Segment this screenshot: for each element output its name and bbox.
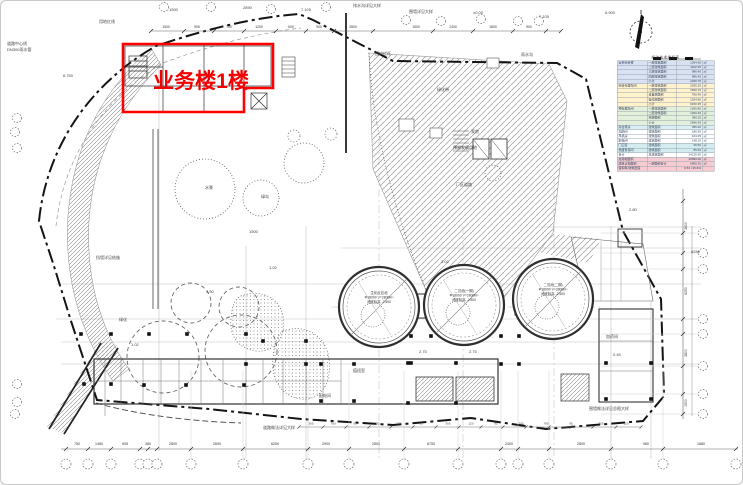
- dim-value: 1480: [95, 442, 103, 446]
- schedule-cell: [702, 166, 714, 171]
- annotation-text: 7.105: [539, 14, 550, 19]
- dim-value: 6750: [427, 442, 435, 446]
- column-dot: [261, 339, 265, 343]
- grid-bubble: [13, 144, 22, 153]
- grid-bubble: [344, 459, 354, 469]
- drainage-channel: [153, 129, 158, 309]
- column-dot: [82, 382, 86, 386]
- site-plan-screenshot: 生化反应池Ф18000 V=2800m³池底标高 -2.500二沉池(一期)Ф1…: [0, 0, 743, 485]
- column-dot: [319, 362, 323, 366]
- area-schedule-title: 经济技术指标表: [617, 55, 714, 60]
- grid-bubble: [13, 380, 22, 389]
- grid-bubble: [699, 330, 708, 339]
- grid-bubble: [544, 459, 554, 469]
- dim-value: 900: [316, 25, 322, 29]
- column-dot: [242, 383, 246, 387]
- grid-bubble: [11, 128, 20, 137]
- dim-value: 1500: [412, 25, 420, 29]
- grid-bubble: [13, 114, 22, 123]
- grid-bubble: [496, 459, 506, 469]
- column-dot: [517, 362, 521, 366]
- dim-value: 750: [74, 442, 80, 446]
- grid-bubble: [514, 17, 523, 26]
- annotation-text: 3.02: [441, 259, 450, 264]
- annotation-text: 道路做法详见大样: [263, 424, 295, 430]
- annotation-text: 2890: [243, 5, 253, 10]
- tank-label: 池底标高 -2.500: [367, 299, 391, 304]
- grid-bubble: [699, 390, 708, 399]
- schedule-row: 综合处理车间一层建筑面积2035.20㎡: [617, 84, 714, 89]
- annotation-text: 挡墙详见结施: [96, 254, 120, 260]
- boundary-hatch-band: [67, 48, 161, 381]
- annotation-text: 6.750: [63, 73, 74, 78]
- dim-value: 2800: [349, 25, 357, 29]
- annotation-text: 泵房: [471, 128, 479, 134]
- dim-value: 905: [122, 442, 128, 446]
- column-dot: [244, 332, 248, 336]
- column-dot: [406, 401, 410, 405]
- column-dot: [185, 332, 189, 336]
- tank-label: 池底标高 -2.500: [452, 297, 476, 302]
- annotation-text: 加药间: [606, 333, 618, 339]
- dim-value: 780: [330, 422, 335, 426]
- stair-ladder: [282, 57, 295, 77]
- schedule-row: 业务综合楼一层建筑面积1264.60㎡: [617, 61, 714, 66]
- grid-bubble: [731, 459, 741, 469]
- dim-value: 305: [445, 422, 450, 426]
- grid-bubble: [513, 459, 523, 469]
- annotation-text: 2.75: [469, 349, 478, 354]
- dim-value: 120: [623, 422, 628, 426]
- dim-value: 6250: [684, 287, 688, 295]
- grid-bubble: [207, 3, 216, 12]
- annotation-text: 厂区道路: [456, 181, 472, 187]
- dim-value: 120: [468, 422, 473, 426]
- annotation-text: 1.02: [269, 265, 278, 270]
- dim-value: 2800: [684, 349, 688, 357]
- schedule-cell: 容积率/建筑密度: [617, 166, 647, 171]
- grid-bubble: [402, 16, 411, 25]
- column-dot: [649, 397, 653, 401]
- grid-bubble: [61, 459, 71, 469]
- grid-bubble: [658, 459, 668, 469]
- clarifier-tank: 二沉池(二期)Ф18000 V=2800m³池底标高 -2.500: [513, 259, 593, 339]
- dim-value: 2400: [505, 442, 513, 446]
- clarifier-tank: 生化反应池Ф18000 V=2800m³池底标高 -2.500: [339, 267, 419, 347]
- column-dot: [406, 361, 410, 365]
- annotation-text: 围墙详见大样: [409, 8, 433, 14]
- tank-label: Ф18000 V=2800m³: [450, 294, 480, 298]
- annotation-text: 围护栏杆: [375, 50, 391, 56]
- grid-bubble: [267, 5, 276, 14]
- annotation-text: 7.105: [301, 7, 312, 12]
- tank-label: Ф18000 V=2800m³: [365, 296, 395, 300]
- grid-bubble: [477, 15, 486, 24]
- schedule-row: 建筑占地面积一层面积合计6890.35㎡: [617, 162, 714, 167]
- annotation-text: 2.75: [419, 349, 428, 354]
- grid-bubble: [699, 315, 708, 324]
- dim-value: 305: [308, 422, 313, 426]
- area-schedule-table: 经济技术指标表 业务综合楼一层建筑面积1264.60㎡二层建筑面积1102.35…: [617, 55, 714, 171]
- north-compass-icon: [630, 10, 652, 49]
- tank-label: Ф18000 V=2800m³: [539, 288, 569, 292]
- dim-value: 1500: [162, 25, 170, 29]
- annotation-text: 配电间: [319, 392, 331, 398]
- annotation-text: 预留发展用地: [453, 144, 477, 150]
- schedule-row: 预处理车间一层建筑面积1265.80㎡: [617, 107, 714, 112]
- column-dot: [142, 383, 146, 387]
- grid-bubble: [699, 410, 708, 419]
- annotation-text: 6250: [691, 249, 701, 254]
- grid-bubble: [699, 229, 708, 238]
- schedule-cell: 0.53 / 25.6%: [676, 166, 702, 171]
- column-dot: [429, 334, 433, 338]
- grid-bubble: [699, 265, 708, 274]
- grid-bubble: [13, 398, 22, 407]
- dim-value: 600: [288, 25, 294, 29]
- annotation-text: 水景: [205, 184, 213, 190]
- dim-value: 2900: [322, 442, 330, 446]
- dim-value: 380: [145, 442, 151, 446]
- annotation-text: 绿岛: [261, 193, 269, 199]
- grid-bubble: [11, 410, 20, 419]
- column-dot: [79, 332, 83, 336]
- dim-value: 6250: [271, 442, 279, 446]
- dim-value: 1200: [255, 25, 263, 29]
- grid-bubble: [83, 459, 93, 469]
- schedule-cell: [647, 166, 676, 171]
- column-dot: [352, 362, 356, 366]
- column-dot: [499, 362, 503, 366]
- tank-label: 池底标高 -2.500: [541, 291, 565, 296]
- annotation-text: 2.80: [629, 207, 638, 212]
- column-dot: [304, 362, 308, 366]
- dim-value: 95: [494, 422, 498, 426]
- annotation-text: ±0.00: [473, 10, 484, 15]
- annotation-text: 6.900: [605, 10, 616, 15]
- dim-value: 780: [543, 422, 548, 426]
- dim-value: 2800: [169, 442, 177, 446]
- column-dot: [454, 361, 458, 365]
- clarifier-tanks: 生化反应池Ф18000 V=2800m³池底标高 -2.500二沉池(一期)Ф1…: [339, 259, 593, 347]
- grid-bubble: [606, 459, 616, 469]
- dim-value: 900: [526, 25, 532, 29]
- dim-value: 2400: [449, 25, 457, 29]
- dim-value: 960: [643, 442, 649, 446]
- column-dot: [352, 399, 356, 403]
- dim-value: 95: [353, 422, 357, 426]
- column-dot: [517, 334, 521, 338]
- dim-value: 2800: [577, 442, 585, 446]
- column-dot: [184, 383, 188, 387]
- dim-value: 2800: [372, 442, 380, 446]
- column-dot: [409, 334, 413, 338]
- dim-value: 95: [419, 422, 423, 426]
- annotation-text: 值班室: [353, 367, 365, 373]
- annotation-text: 用地红线: [99, 18, 115, 24]
- grid-bubble: [238, 459, 248, 469]
- annotation-text: 排水沟详见大样: [353, 2, 381, 8]
- column-dot: [304, 339, 308, 343]
- clarifier-tank: 二沉池(一期)Ф18000 V=2800m³池底标高 -2.500: [424, 265, 504, 345]
- column-dot: [244, 362, 248, 366]
- annotation-text: 0.45: [613, 352, 622, 357]
- dim-value: 95: [569, 422, 573, 426]
- annotation-text: 1500: [169, 7, 179, 12]
- dim-value: 2800: [684, 222, 688, 230]
- annotation-text: 雨水沟: [521, 51, 533, 57]
- tank-label: 生化反应池: [371, 290, 389, 295]
- column-dot: [649, 361, 653, 365]
- annotation-text: 绿化: [119, 316, 127, 322]
- annotation-text: DN300雨水管: [7, 46, 31, 52]
- annotation-text: 1500: [249, 229, 259, 234]
- dim-value: 1500: [684, 399, 688, 407]
- dim-value: 305: [374, 422, 379, 426]
- grid-bubble: [453, 459, 463, 469]
- highlight-label: 业务楼1楼: [153, 69, 249, 93]
- column-dot: [147, 332, 151, 336]
- grid-bubble: [437, 17, 446, 26]
- column-dot: [604, 397, 608, 401]
- dim-value: 305: [598, 422, 603, 426]
- annotation-text: 围墙做法详见总图大样: [589, 405, 629, 411]
- dim-value: 1800: [489, 25, 497, 29]
- dim-value: 120: [396, 422, 401, 426]
- schedule-row: 容积率/建筑密度0.53 / 25.6%: [617, 166, 714, 171]
- dim-value: 905: [194, 25, 200, 29]
- grid-bubble: [303, 459, 313, 469]
- annotation-text: 1.02: [131, 342, 140, 347]
- column-dot: [499, 334, 503, 338]
- grid-bubble: [160, 3, 169, 12]
- dim-value: 750: [226, 25, 232, 29]
- grid-bubble: [699, 362, 708, 371]
- grid-bubble: [152, 459, 162, 469]
- column-dot: [319, 399, 323, 403]
- annotation-text: 4.50: [206, 289, 215, 294]
- dim-value: 1880: [697, 442, 705, 446]
- annotation-text: 绿化带: [437, 86, 449, 92]
- grid-bubble: [399, 459, 409, 469]
- column-dot: [454, 401, 458, 405]
- column-dot: [109, 382, 113, 386]
- tank-label: 二沉池(二期): [543, 282, 562, 287]
- grid-bubble: [143, 459, 153, 469]
- tank-label: 二沉池(一期): [454, 288, 473, 293]
- dim-value: 305: [518, 422, 523, 426]
- grid-bubble: [106, 459, 116, 469]
- dim-value: 2690: [213, 442, 221, 446]
- annotation-text: 道路中心线: [7, 40, 27, 46]
- grid-bubble: [322, 3, 331, 12]
- grid-bubble: [186, 459, 196, 469]
- column-dot: [604, 361, 608, 365]
- column-dot: [109, 332, 113, 336]
